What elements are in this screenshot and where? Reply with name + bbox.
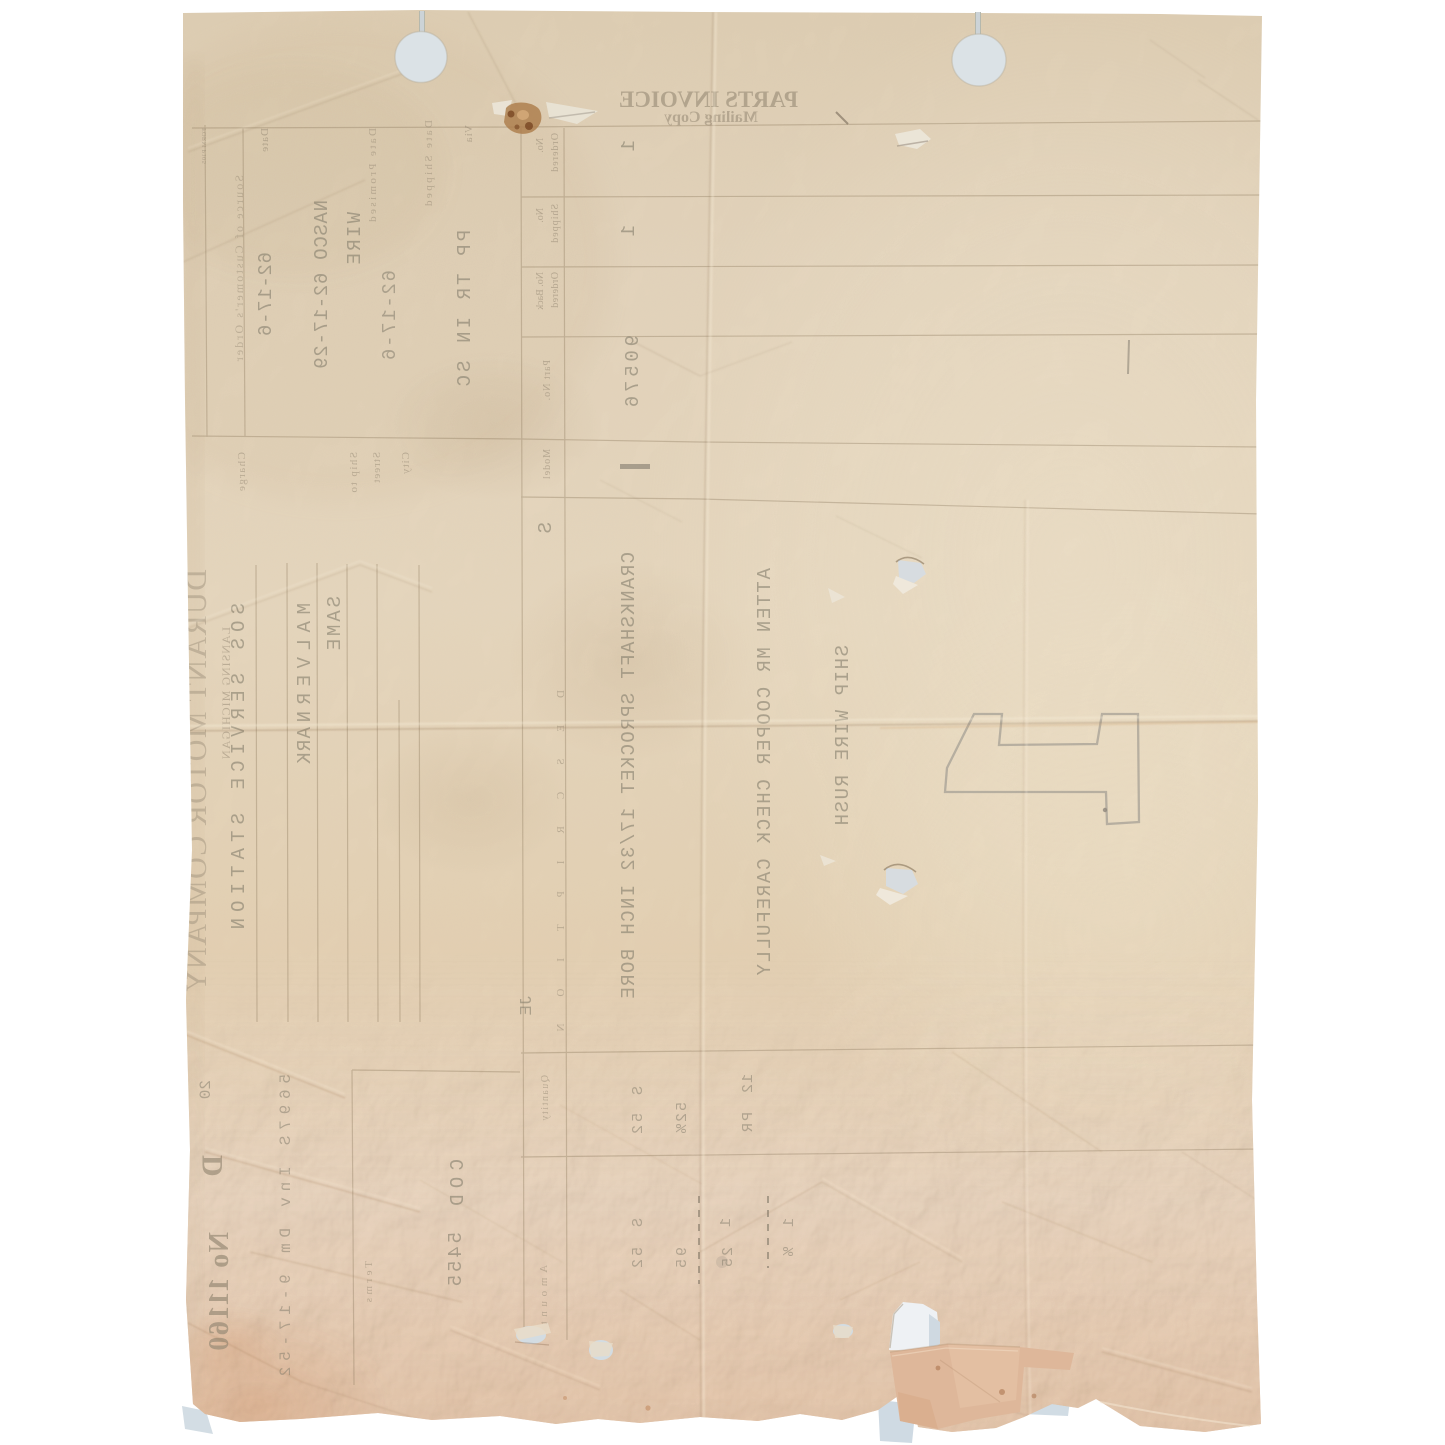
svg-text:S: S <box>535 522 557 533</box>
svg-text:1: 1 <box>781 1218 798 1227</box>
svg-text:S: S <box>630 1086 647 1095</box>
svg-text:95: 95 <box>674 1247 691 1271</box>
svg-text:Quantity: Quantity <box>540 1075 551 1122</box>
svg-text:Via: Via <box>463 125 475 143</box>
svg-text:1: 1 <box>618 140 640 151</box>
svg-text:ATTEN MR COOPER CHECK CAREFUL: ATTEN MR COOPER CHECK CAREFULLY <box>754 568 776 977</box>
svg-text:62-17-6: 62-17-6 <box>379 270 401 362</box>
svg-text:Model: Model <box>542 449 553 480</box>
svg-text:Source of Customer's Order: Source of Customer's Order <box>232 175 246 363</box>
svg-text:LANSING MICHIGAN: LANSING MICHIGAN <box>219 627 233 760</box>
svg-text:WIRE: WIRE <box>344 212 366 267</box>
svg-text:JE: JE <box>518 995 537 1015</box>
svg-text:PP TR IN SC: PP TR IN SC <box>454 230 476 390</box>
svg-text:5697S Inv Dm 9-17-52: 5697S Inv Dm 9-17-52 <box>277 1074 295 1382</box>
svg-text:S: S <box>630 1218 647 1227</box>
svg-text:52: 52 <box>630 1247 647 1271</box>
svg-text:Date Promised: Date Promised <box>367 128 379 224</box>
svg-text:COD: COD <box>447 1159 469 1212</box>
svg-text:Ordered: Ordered <box>550 272 561 308</box>
svg-text:City: City <box>400 452 412 475</box>
svg-text:D: D <box>196 1155 229 1177</box>
svg-text:PR: PR <box>740 1112 757 1134</box>
svg-text:ARK: ARK <box>294 727 316 765</box>
svg-text:52: 52 <box>630 1113 647 1137</box>
svg-text:No.: No. <box>535 138 546 153</box>
svg-text:Amount: Amount <box>538 1265 550 1329</box>
svg-text:%: % <box>781 1247 798 1257</box>
svg-text:SAME: SAME <box>324 596 346 653</box>
svg-text:DESCRIPTION: DESCRIPTION <box>555 690 567 1059</box>
svg-text:No.: No. <box>535 208 546 223</box>
svg-text:Charge: Charge <box>236 452 248 493</box>
svg-text:1: 1 <box>718 1218 735 1227</box>
svg-text:Shipped: Shipped <box>550 204 561 244</box>
svg-text:Terms: Terms <box>363 1261 375 1306</box>
svg-text:52%: 52% <box>674 1102 691 1135</box>
svg-text:Date Shipped: Date Shipped <box>423 120 435 208</box>
svg-text:Date: Date <box>259 128 271 153</box>
svg-text:Street: Street <box>371 452 383 484</box>
svg-text:MALVERN: MALVERN <box>294 603 316 729</box>
svg-text:5455: 5455 <box>445 1232 467 1289</box>
svg-text:No. Back: No. Back <box>535 272 546 310</box>
svg-text:Ship to: Ship to <box>348 452 360 494</box>
svg-text:12: 12 <box>740 1074 757 1094</box>
svg-text:1: 1 <box>618 225 640 236</box>
svg-text:62-17-6: 62-17-6 <box>255 252 277 337</box>
svg-text:NASCO 62-17-29: NASCO 62-17-29 <box>311 200 333 369</box>
svg-text:Ordered: Ordered <box>550 133 561 173</box>
svg-text:Part No.: Part No. <box>542 360 553 401</box>
svg-text:20: 20 <box>197 1080 215 1099</box>
svg-text:SHIP WIRE RUSH: SHIP WIRE RUSH <box>832 645 854 827</box>
svg-text:CRANKSHAFT SPROCKET 17/32 INCH: CRANKSHAFT SPROCKET 17/32 INCH BORE <box>618 552 640 1000</box>
